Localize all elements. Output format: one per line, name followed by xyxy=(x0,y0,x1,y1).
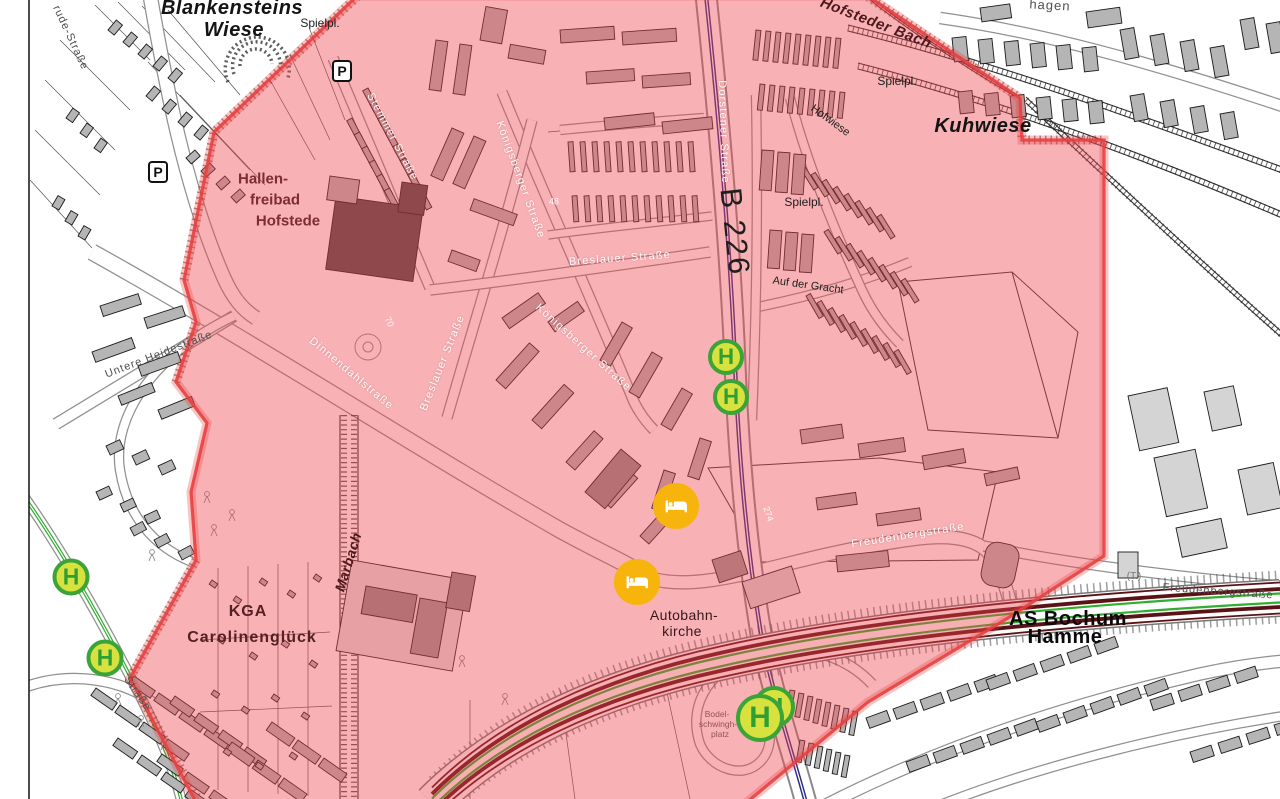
evacuation-zone-fill xyxy=(130,0,1104,799)
map-margin xyxy=(0,0,29,799)
map-viewport[interactable]: BlankensteinsWieseSpielpl.Hofsteder Bach… xyxy=(0,0,1280,799)
map-canvas xyxy=(0,0,1280,799)
